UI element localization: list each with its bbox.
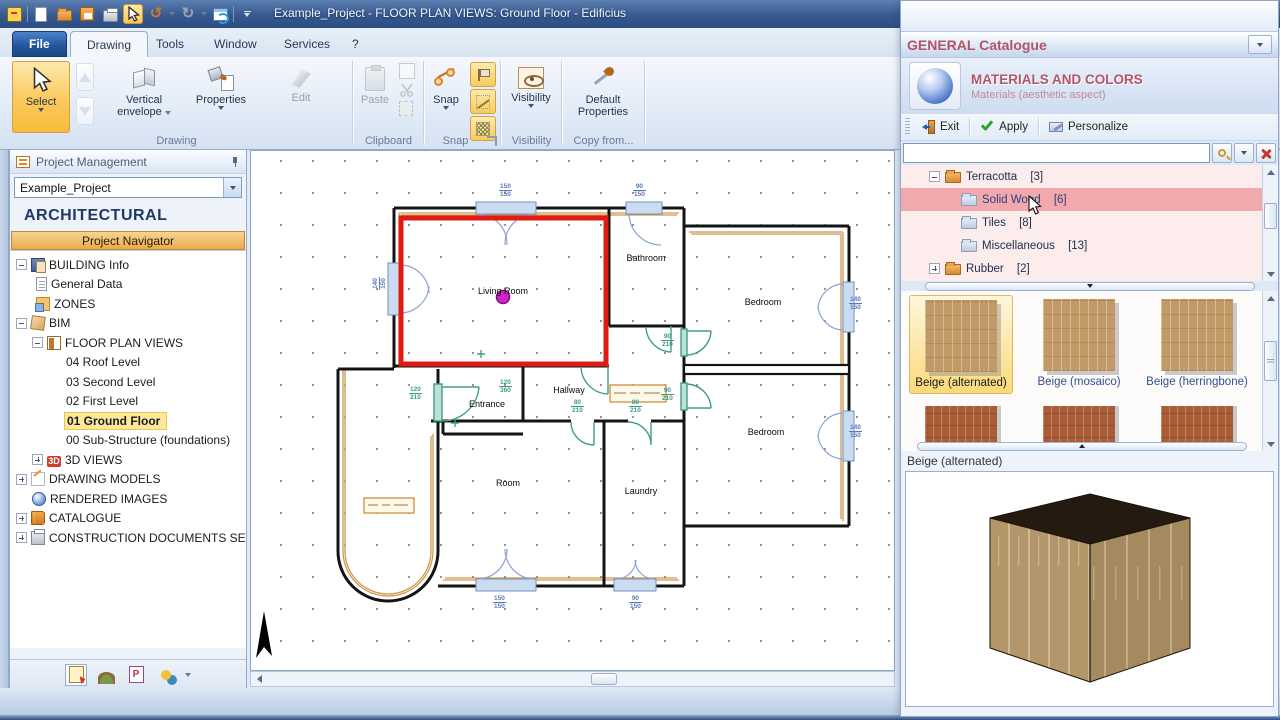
- group-label-copy-from: Copy from...: [562, 135, 645, 147]
- edit-icon: [289, 67, 313, 89]
- window-left-edge: [0, 150, 9, 690]
- construction-documents-icon: [31, 531, 45, 545]
- scrollbar-thumb[interactable]: [591, 673, 617, 685]
- settings-gears-button[interactable]: [155, 664, 177, 686]
- ribbon-group-clipboard: Paste Clipboard: [353, 57, 424, 149]
- search-options-dropdown[interactable]: [1234, 143, 1254, 163]
- search-input[interactable]: [903, 143, 1210, 163]
- tab-help[interactable]: ?: [336, 31, 375, 57]
- thumbnail-beige-mosaico[interactable]: Beige (mosaico): [1027, 295, 1131, 392]
- cut-icon: [399, 83, 415, 97]
- panel-top-spacer: [901, 1, 1278, 31]
- ribbon-group-snap: Snap Snap: [424, 57, 501, 149]
- project-management-icon: [16, 156, 30, 168]
- search-row: [901, 141, 1278, 165]
- project-tree: BUILDING Info General Data ZONES BIM FLO…: [10, 250, 246, 648]
- tab-services[interactable]: Services: [268, 31, 346, 57]
- project-management-panel: Project Management Example_Project ARCHI…: [9, 150, 247, 690]
- project-combobox-value: Example_Project: [15, 181, 223, 195]
- section-title: ARCHITECTURAL: [10, 201, 246, 231]
- folder-icon: [961, 241, 977, 252]
- thumbnail-beige-herringbone[interactable]: Beige (herringbone): [1145, 295, 1249, 392]
- paste-button: Paste: [353, 61, 397, 133]
- room-label-living-room: Living Room: [478, 286, 528, 296]
- tree-item-solid-wood[interactable]: Solid Wood [6]: [901, 188, 1278, 211]
- tree-item-00-substructure[interactable]: 00 Sub-Structure (foundations): [10, 431, 246, 451]
- ribbon-group-visibility: Visibility Visibility: [501, 57, 562, 149]
- catalogue-title: GENERAL Catalogue: [907, 37, 1248, 53]
- toolbar-grip: [905, 118, 910, 136]
- tree-item-rubber[interactable]: Rubber [2]: [901, 257, 1278, 280]
- canvas-horizontal-scrollbar[interactable]: [250, 671, 895, 687]
- catalogue-panel: GENERAL Catalogue MATERIALS AND COLORS M…: [900, 0, 1279, 717]
- panel-title: Project Management: [36, 155, 147, 169]
- zones-icon: [36, 297, 50, 311]
- tree-item-building-info[interactable]: BUILDING Info: [10, 255, 246, 275]
- tree-item-catalogue[interactable]: CATALOGUE: [10, 509, 246, 529]
- pin-icon[interactable]: [230, 157, 240, 167]
- dim-label: 140150: [849, 296, 862, 311]
- snap-dropdown-caret: [443, 106, 449, 110]
- catalogue-toolbar: Exit Apply Personalize: [901, 114, 1278, 141]
- preview-material-name: Beige (alternated): [901, 451, 1278, 471]
- tree-item-general-data[interactable]: General Data: [10, 275, 246, 295]
- material-sphere-box: [909, 62, 961, 110]
- folder-icon: [961, 218, 977, 229]
- tree-item-construction-documents[interactable]: CONSTRUCTION DOCUMENTS SET: [10, 528, 246, 548]
- group-label-snap: Snap: [424, 135, 487, 147]
- dim-label: 90150: [629, 595, 642, 610]
- dim-label: 150150: [499, 183, 512, 198]
- materials-subtitle: Materials (aesthetic aspect): [971, 89, 1143, 101]
- tab-window[interactable]: Window: [198, 31, 273, 57]
- snap-button[interactable]: Snap: [424, 61, 468, 133]
- materials-header: MATERIALS AND COLORS Materials (aestheti…: [901, 58, 1278, 114]
- room-label-room: Room: [496, 478, 520, 488]
- dim-label: 120210: [409, 386, 422, 401]
- group-label-clipboard: Clipboard: [353, 135, 424, 147]
- 3d-views-icon: 3D: [47, 453, 61, 467]
- thumbnails-scrollbar[interactable]: [1262, 291, 1278, 451]
- properties-button[interactable]: Properties: [190, 61, 252, 133]
- scroll-up-arrow[interactable]: [1264, 165, 1278, 179]
- search-icon: [1218, 149, 1226, 157]
- select-dropdown-caret: [38, 108, 44, 112]
- room-label-entrance: Entrance: [469, 399, 505, 409]
- catalogue-dropdown-button[interactable]: [1248, 35, 1272, 54]
- paste-icon: [365, 67, 385, 91]
- room-label-laundry: Laundry: [625, 486, 658, 496]
- mouse-cursor: [1027, 195, 1042, 216]
- folder-icon: [945, 172, 961, 183]
- folder-icon: [945, 264, 961, 275]
- scroll-left-arrow[interactable]: [251, 672, 267, 686]
- dim-label: 90150: [633, 183, 646, 198]
- tree-item-terracotta[interactable]: Terracotta [3]: [901, 165, 1278, 188]
- tree-item-floor-plan-views[interactable]: FLOOR PLAN VIEWS: [10, 333, 246, 353]
- scrollbar-thumb[interactable]: [1264, 203, 1277, 229]
- scroll-down-arrow[interactable]: [1264, 437, 1278, 451]
- drawing-models-icon: [31, 472, 45, 486]
- document-icon: [36, 277, 47, 291]
- material-thumbnails: Beige (alternated) Beige (mosaico) Beige…: [901, 291, 1278, 451]
- materials-title: MATERIALS AND COLORS: [971, 72, 1143, 87]
- floor-plan-icon: [47, 336, 61, 350]
- dim-label: 140150: [849, 424, 862, 439]
- scroll-up-arrow[interactable]: [1264, 291, 1278, 305]
- material-swatch: [925, 300, 997, 372]
- tree-item-drawing-models[interactable]: DRAWING MODELS: [10, 470, 246, 490]
- step-down-button[interactable]: [76, 97, 94, 125]
- thumbnail-beige-alternated[interactable]: Beige (alternated): [909, 295, 1013, 394]
- annotation-boxes: [364, 385, 666, 513]
- tab-tools[interactable]: Tools: [140, 31, 200, 57]
- clear-search-button[interactable]: [1256, 143, 1276, 163]
- material-swatch: [1161, 299, 1233, 371]
- copy-icon: [399, 63, 415, 79]
- bedroom-divider-wall: [684, 365, 849, 374]
- check-icon: [980, 121, 994, 133]
- tree-item-01-ground-floor[interactable]: 01 Ground Floor: [10, 411, 246, 431]
- step-up-button[interactable]: [76, 63, 94, 91]
- tree-item-3d-views[interactable]: 3D3D VIEWS: [10, 450, 246, 470]
- dim-label: 150150: [493, 595, 506, 610]
- project-navigator-bar[interactable]: Project Navigator: [11, 231, 245, 250]
- catalogue-icon: [31, 511, 45, 525]
- close-icon: [1261, 148, 1271, 158]
- visibility-button[interactable]: Visibility: [503, 61, 559, 133]
- properties-dropdown-caret: [218, 106, 224, 110]
- paste-special-icon: [399, 101, 413, 116]
- drawing-doc-tool-button[interactable]: [65, 664, 87, 686]
- dim-label: 140150: [372, 277, 387, 290]
- exit-icon: [922, 120, 935, 134]
- vertical-envelope-button[interactable]: Verticalenvelope: [112, 61, 176, 133]
- visibility-icon: [518, 67, 544, 89]
- tree-item-miscellaneous[interactable]: Miscellaneous [13]: [901, 234, 1278, 257]
- exit-button[interactable]: Exit: [916, 118, 965, 136]
- snap-icon: [433, 67, 459, 91]
- room-label-bathroom: Bathroom: [626, 253, 665, 263]
- sphere-icon: [917, 68, 953, 104]
- snap-dialog-launcher[interactable]: [487, 136, 497, 146]
- material-cube-preview: [930, 476, 1250, 702]
- sidebar-bottom-toolbar: P: [10, 659, 246, 689]
- snap-toggle-flag[interactable]: [470, 62, 496, 87]
- panel-header: Project Management: [10, 150, 246, 174]
- tree-item-02-first-level[interactable]: 02 First Level: [10, 392, 246, 412]
- material-preview: [905, 471, 1274, 707]
- walls: [338, 208, 849, 601]
- tab-drawing[interactable]: Drawing: [70, 31, 148, 57]
- tree-item-04-roof-level[interactable]: 04 Roof Level: [10, 353, 246, 373]
- scrollbar-thumb[interactable]: [1264, 341, 1277, 381]
- default-properties-button[interactable]: DefaultProperties: [572, 61, 634, 133]
- terrain-tool-button[interactable]: [95, 664, 117, 686]
- wall-finish-lines: [343, 213, 843, 596]
- room-label-bedroom-2: Bedroom: [748, 427, 785, 437]
- room-label-bedroom-1: Bedroom: [745, 297, 782, 307]
- room-label-hallway: Hallway: [553, 385, 585, 395]
- tree-splitter[interactable]: [901, 281, 1278, 291]
- tab-file[interactable]: File: [12, 31, 67, 57]
- bim-icon: [30, 315, 46, 331]
- clipboard-small-buttons: [399, 63, 415, 116]
- toolbar-more-caret[interactable]: [185, 673, 191, 677]
- tree-item-tiles[interactable]: Tiles [8]: [901, 211, 1278, 234]
- eyedropper-icon: [591, 67, 615, 91]
- tree-item-zones[interactable]: ZONES: [10, 294, 246, 314]
- tree-item-rendered-images[interactable]: RENDERED IMAGES: [10, 489, 246, 509]
- cursor-icon: [30, 67, 52, 93]
- rendered-images-icon: [32, 492, 46, 506]
- apply-button[interactable]: Apply: [974, 119, 1034, 135]
- tree-item-bim[interactable]: BIM: [10, 314, 246, 334]
- project-combobox[interactable]: Example_Project: [14, 177, 242, 198]
- edit-button: Edit: [272, 61, 330, 133]
- ribbon-group-copy-from: DefaultProperties Copy from...: [562, 57, 645, 149]
- building-icon: [31, 258, 45, 272]
- materials-tree: Terracotta [3] Solid Wood [6] Tiles [8] …: [901, 165, 1278, 281]
- dim-label: 90210: [661, 387, 674, 402]
- selection-steppers: [76, 63, 94, 125]
- window-title: Example_Project - FLOOR PLAN VIEWS: Grou…: [0, 6, 900, 20]
- ribbon-group-drawing: Select Verticalenvelope Properties Edit …: [0, 57, 353, 149]
- properties-icon: [208, 67, 234, 91]
- group-label-visibility: Visibility: [501, 135, 562, 147]
- scroll-down-arrow[interactable]: [1264, 267, 1278, 281]
- personalize-icon: [1049, 121, 1063, 134]
- snap-toggle-diagonal[interactable]: [470, 89, 496, 114]
- project-doc-tool-button[interactable]: P: [125, 664, 147, 686]
- personalize-button[interactable]: Personalize: [1043, 119, 1134, 136]
- tree-scrollbar[interactable]: [1262, 165, 1278, 281]
- search-button[interactable]: [1212, 143, 1232, 163]
- select-button[interactable]: Select: [12, 61, 70, 133]
- tree-item-03-second-level[interactable]: 03 Second Level: [10, 372, 246, 392]
- north-arrow: [256, 611, 272, 658]
- dim-label: 90210: [661, 333, 674, 348]
- edificius-window: ↺ ↻ Example_Project - FLOOR PLAN VIEWS: …: [0, 0, 1280, 720]
- dim-label: 80210: [571, 399, 584, 414]
- group-label-drawing: Drawing: [0, 135, 353, 147]
- snap-toggles: [470, 62, 496, 141]
- vertical-envelope-icon: [131, 67, 157, 91]
- drawing-canvas[interactable]: Living Room Bathroom Bedroom Bedroom Hal…: [250, 150, 895, 671]
- folder-icon: [961, 195, 977, 206]
- visibility-dropdown-caret: [528, 104, 534, 108]
- catalogue-header: GENERAL Catalogue: [901, 31, 1278, 58]
- thumbnails-splitter[interactable]: [901, 441, 1262, 451]
- project-combobox-dropdown[interactable]: [223, 178, 241, 197]
- material-swatch: [1043, 299, 1115, 371]
- dim-label: 80210: [629, 399, 642, 414]
- dim-label: 120360: [499, 379, 512, 394]
